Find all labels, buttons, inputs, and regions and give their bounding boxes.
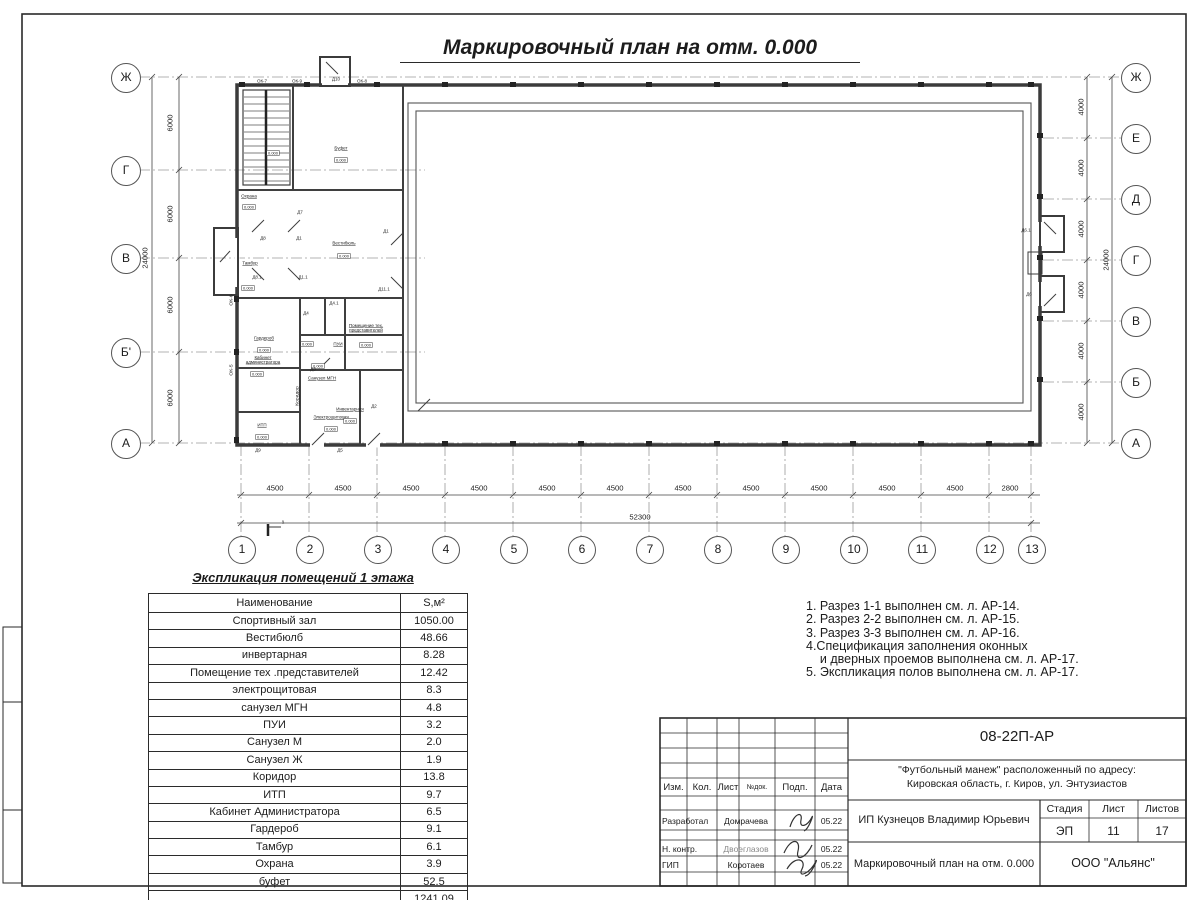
- room-area-cell: 6.1: [401, 839, 468, 856]
- axis-bubble-right: Б: [1121, 368, 1151, 398]
- room-area-cell: 13.8: [401, 769, 468, 786]
- notes-list: 1. Разрез 1-1 выполнен см. л. АР-14.2. Р…: [806, 600, 1079, 680]
- room-label: ИТП: [257, 423, 266, 428]
- room-label: Тамбур: [242, 261, 257, 266]
- axis-bubble-left: В: [111, 244, 141, 274]
- signer-date: 05.22: [815, 860, 848, 870]
- table-row: инвертарная8.28: [149, 647, 468, 664]
- room-name-cell: инвертарная: [149, 647, 401, 664]
- drawing-name: Маркировочный план на отм. 0.000: [848, 858, 1040, 870]
- room-area-cell: 1050.00: [401, 613, 468, 630]
- room-name-cell: электрощитовая: [149, 682, 401, 699]
- signer-role: ГИП: [662, 860, 716, 870]
- axis-bubble-left: Б': [111, 338, 141, 368]
- axis-bubble-left: Г: [111, 156, 141, 186]
- dimension-value: 2800: [1001, 484, 1018, 493]
- room-area-cell: 3.2: [401, 717, 468, 734]
- opening-label: Д5: [337, 448, 343, 453]
- room-name-cell: Охрана: [149, 856, 401, 873]
- room-name-cell: Санузел Ж: [149, 752, 401, 769]
- table-row: ИТП9.7: [149, 786, 468, 803]
- table-row: санузел МГН4.8: [149, 699, 468, 716]
- room-area-cell: 1241.09: [401, 891, 468, 900]
- signer-name: Двоеглазов: [717, 844, 775, 854]
- table-row: Гардероб9.1: [149, 821, 468, 838]
- axis-bubble-right: Д: [1121, 185, 1151, 215]
- signer-role: Разработал: [662, 816, 716, 826]
- opening-label: Д9: [255, 448, 261, 453]
- room-label: Буфет: [334, 146, 347, 151]
- column-bubble: 10: [840, 536, 868, 564]
- signer-name: Коротаев: [717, 860, 775, 870]
- axis-bubble-right: А: [1121, 429, 1151, 459]
- table-row: Вестибюлб48.66: [149, 630, 468, 647]
- opening-label: Д7: [297, 210, 303, 215]
- sheet-label: Лист: [1089, 803, 1138, 815]
- opening-label: ОК-8: [357, 79, 367, 84]
- dimension-value: 4000: [1077, 98, 1086, 115]
- room-label: ПУИ: [333, 342, 342, 347]
- room-label: Гардероб: [254, 336, 274, 341]
- column-bubble: 1: [228, 536, 256, 564]
- dimension-value: 4000: [1077, 403, 1086, 420]
- table-row: 1241.09: [149, 891, 468, 900]
- room-name-cell: [149, 891, 401, 900]
- opening-label: Д6: [1026, 292, 1032, 297]
- note-line: 4.Спецификация заполнения оконных: [806, 640, 1079, 653]
- level-mark: 0.000: [324, 426, 337, 432]
- room-label: Помещение тех. представителей: [347, 323, 386, 332]
- opening-label: Д10: [332, 77, 340, 82]
- room-label: Коридор: [294, 386, 300, 406]
- opening-label: Д4.1: [329, 301, 338, 306]
- axis-bubble-right: Г: [1121, 246, 1151, 276]
- header-podp: Подп.: [775, 782, 815, 793]
- table-row: Охрана3.9: [149, 856, 468, 873]
- signer-name: Домрачева: [717, 816, 775, 826]
- table-row: Помещение тех .представителей12.42: [149, 665, 468, 682]
- dimension-value: 4500: [674, 484, 691, 493]
- axis-bubble-left: А: [111, 429, 141, 459]
- stage-value: ЭП: [1040, 824, 1089, 838]
- opening-label: ОК-6: [228, 294, 234, 305]
- room-label: Охрана: [241, 194, 257, 199]
- room-area-cell: 9.7: [401, 786, 468, 803]
- opening-label: Д2: [371, 404, 377, 409]
- column-bubble: 5: [500, 536, 528, 564]
- room-name-cell: санузел МГН: [149, 699, 401, 716]
- room-area-cell: 3.9: [401, 856, 468, 873]
- company-name: ООО "Альянс": [1040, 856, 1186, 870]
- dimension-value: 6000: [166, 389, 175, 406]
- level-mark: 0.000: [343, 418, 356, 424]
- client-name: ИП Кузнецов Владимир Юрьевич: [848, 814, 1040, 826]
- room-area-cell: 12.42: [401, 665, 468, 682]
- axis-bubble-right: Е: [1121, 124, 1151, 154]
- sheets-value: 17: [1138, 824, 1186, 838]
- drawing-sheet: Маркировочный план на отм. 0.000 ЖГВБ'АЖ…: [0, 0, 1200, 900]
- column-bubble: 6: [568, 536, 596, 564]
- level-mark: 0.000: [255, 434, 268, 440]
- room-area-cell: 6.5: [401, 804, 468, 821]
- signer-date: 05.22: [815, 844, 848, 854]
- opening-label: Д1.1: [298, 275, 307, 280]
- room-label: Санузел МГН: [308, 376, 336, 381]
- room-area-cell: 9.1: [401, 821, 468, 838]
- table-row: ПУИ3.2: [149, 717, 468, 734]
- room-name-cell: Спортивный зал: [149, 613, 401, 630]
- header-dok: №док.: [739, 784, 775, 791]
- level-mark: 0.000: [300, 341, 313, 347]
- doc-number: 08-22П-АР: [848, 728, 1186, 745]
- dimension-value: 4500: [538, 484, 555, 493]
- table-row: электрощитовая8.3: [149, 682, 468, 699]
- column-bubble: 3: [364, 536, 392, 564]
- room-area-cell: 48.66: [401, 630, 468, 647]
- axis-bubble-left: Ж: [111, 63, 141, 93]
- table-header-row: Наименование S,м²: [149, 594, 468, 613]
- dimension-value: 4000: [1077, 159, 1086, 176]
- signer-date: 05.22: [815, 816, 848, 826]
- room-area-cell: 8.28: [401, 647, 468, 664]
- header-list: Лист: [717, 782, 739, 793]
- column-bubble: 13: [1018, 536, 1046, 564]
- room-name-cell: ИТП: [149, 786, 401, 803]
- dimension-value: 6000: [166, 296, 175, 313]
- dim-total-left: 24000: [141, 247, 150, 268]
- dimension-value: 4500: [742, 484, 759, 493]
- dimension-value: 4500: [402, 484, 419, 493]
- note-line: 3. Разрез 3-3 выполнен см. л. АР-16.: [806, 627, 1079, 640]
- room-label: Кабинет администратора: [244, 355, 283, 364]
- level-mark: 0.000: [359, 342, 372, 348]
- dim-total-right: 24000: [1102, 249, 1111, 270]
- column-bubble: 2: [296, 536, 324, 564]
- opening-label: Д1: [296, 236, 302, 241]
- table-row: Санузел М2.0: [149, 734, 468, 751]
- column-bubble: 9: [772, 536, 800, 564]
- opening-label: Д11.1: [378, 287, 389, 292]
- column-bubble: 12: [976, 536, 1004, 564]
- note-line: и дверных проемов выполнена см. л. АР-17…: [806, 653, 1079, 666]
- stage-label: Стадия: [1040, 803, 1089, 815]
- axis-bubble-right: Ж: [1121, 63, 1151, 93]
- room-name-cell: Санузел М: [149, 734, 401, 751]
- header-izm: Изм.: [660, 782, 687, 793]
- room-name-cell: буфет: [149, 873, 401, 890]
- dimension-value: 4000: [1077, 342, 1086, 359]
- dimension-value: 4500: [810, 484, 827, 493]
- column-header-area: S,м²: [401, 594, 468, 613]
- room-area-cell: 4.8: [401, 699, 468, 716]
- sheet-value: 11: [1089, 824, 1138, 838]
- room-label: Вестибюль: [332, 241, 355, 246]
- explication-table: Наименование S,м² Спортивный зал1050.00В…: [148, 593, 468, 900]
- opening-label: Д3: [310, 367, 316, 372]
- project-address-line2: Кировская область, г. Киров, ул. Энтузиа…: [848, 778, 1186, 790]
- project-address-line1: "Футбольный манеж" расположенный по адре…: [848, 764, 1186, 776]
- header-data: Дата: [815, 782, 848, 793]
- dimension-value: 6000: [166, 114, 175, 131]
- room-label: Инвентарная: [336, 407, 363, 412]
- dim-total-bottom: 52300: [629, 513, 650, 522]
- column-bubble: 8: [704, 536, 732, 564]
- note-line: 2. Разрез 2-2 выполнен см. л. АР-15.: [806, 613, 1079, 626]
- room-name-cell: Коридор: [149, 769, 401, 786]
- dimension-value: 4500: [606, 484, 623, 493]
- table-row: Кабинет Администратора6.5: [149, 804, 468, 821]
- dimension-value: 4500: [334, 484, 351, 493]
- opening-label: Д8: [260, 236, 266, 241]
- dimension-value: 4500: [470, 484, 487, 493]
- table-row: Спортивный зал1050.00: [149, 613, 468, 630]
- table-row: Санузел Ж1.9: [149, 752, 468, 769]
- table-row: буфет52.5: [149, 873, 468, 890]
- room-area-cell: 2.0: [401, 734, 468, 751]
- level-mark: 0.000: [257, 347, 270, 353]
- room-name-cell: Помещение тех .представителей: [149, 665, 401, 682]
- table-row: Коридор13.8: [149, 769, 468, 786]
- signer-role: Н. контр.: [662, 844, 716, 854]
- dimension-value: 6000: [166, 205, 175, 222]
- note-line: 5. Экспликация полов выполнена см. л. АР…: [806, 666, 1079, 679]
- axis-bubble-right: В: [1121, 307, 1151, 337]
- dimension-value: 4000: [1077, 220, 1086, 237]
- room-name-cell: Тамбур: [149, 839, 401, 856]
- level-mark: 0.000: [242, 204, 255, 210]
- room-name-cell: Вестибюлб: [149, 630, 401, 647]
- table-row: Тамбур6.1: [149, 839, 468, 856]
- column-bubble: 11: [908, 536, 936, 564]
- sheets-label: Листов: [1138, 803, 1186, 815]
- explication-title: Экспликация помещений 1 этажа: [150, 570, 456, 585]
- opening-label: Д6.1: [1021, 228, 1030, 233]
- dimension-value: 4500: [266, 484, 283, 493]
- opening-label: Д1: [383, 229, 389, 234]
- room-area-cell: 52.5: [401, 873, 468, 890]
- level-mark: 0.000: [266, 150, 279, 156]
- note-line: 1. Разрез 1-1 выполнен см. л. АР-14.: [806, 600, 1079, 613]
- opening-label: ОК-9: [292, 79, 302, 84]
- room-name-cell: ПУИ: [149, 717, 401, 734]
- level-mark: 0.000: [337, 253, 350, 259]
- room-name-cell: Гардероб: [149, 821, 401, 838]
- level-mark: 0.000: [241, 285, 254, 291]
- section-marker-label: 1: [282, 520, 285, 525]
- dimension-value: 4500: [878, 484, 895, 493]
- level-mark: 0.000: [250, 371, 263, 377]
- level-mark: 0.000: [334, 157, 347, 163]
- room-area-cell: 8.3: [401, 682, 468, 699]
- column-header-name: Наименование: [149, 594, 401, 613]
- opening-label: ОК-7: [257, 79, 267, 84]
- column-bubble: 7: [636, 536, 664, 564]
- opening-label: Д8.1: [252, 275, 261, 280]
- opening-label: ОК-5: [228, 364, 234, 375]
- header-kol: Кол.: [687, 782, 717, 793]
- room-area-cell: 1.9: [401, 752, 468, 769]
- room-name-cell: Кабинет Администратора: [149, 804, 401, 821]
- opening-label: Д4: [303, 311, 309, 316]
- dimension-value: 4500: [946, 484, 963, 493]
- column-bubble: 4: [432, 536, 460, 564]
- dimension-value: 4000: [1077, 281, 1086, 298]
